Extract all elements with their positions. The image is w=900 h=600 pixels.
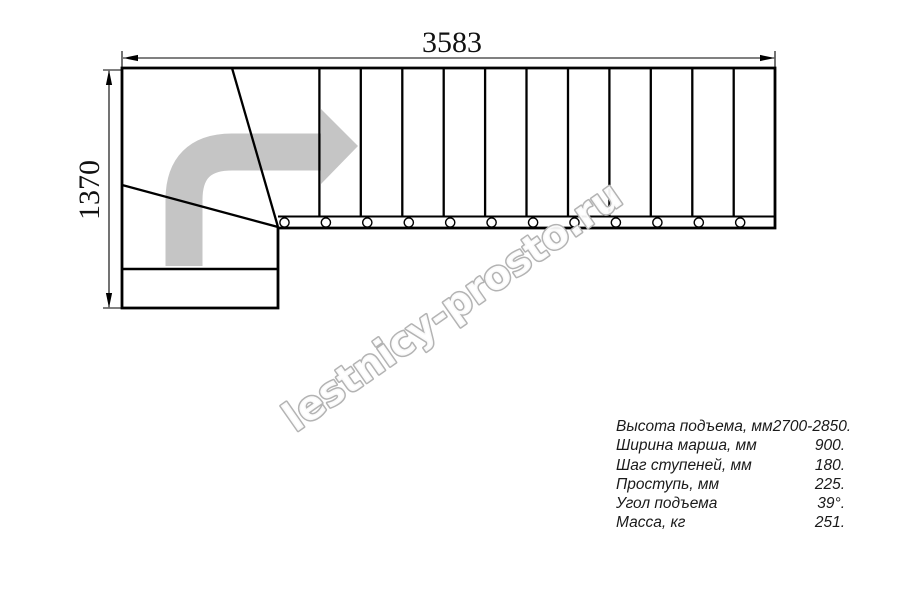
spec-label: Проступь, мм [616,475,719,494]
spec-value: 900. [815,436,845,455]
spec-row-tread-depth: Проступь, мм 225. [616,475,845,494]
baluster-circle [736,218,745,227]
spec-label: Шаг ступеней, мм [616,456,752,475]
width-dimension-label: 3583 [422,26,482,59]
staircase-outline [122,68,775,308]
direction-arrow [184,109,358,266]
spec-label: Ширина марша, мм [616,436,757,455]
spec-value: 39°. [817,494,845,513]
baluster-circles [280,218,745,227]
baluster-circle [487,218,496,227]
dimension-arrow-left [123,55,138,61]
spec-row-step-rise: Шаг ступеней, мм 180. [616,456,845,475]
spec-value: 225. [815,475,845,494]
spec-row-flight-width: Ширина марша, мм 900. [616,436,845,455]
baluster-circle [363,218,372,227]
tread-lines [319,68,733,217]
spec-label: Угол подъема [616,494,717,513]
spec-value: 251. [815,513,845,532]
staircase-plan-page: 3583 1370 [0,0,900,600]
baluster-circle [446,218,455,227]
baluster-circle [694,218,703,227]
spec-table: Высота подъема, мм 2700-2850. Ширина мар… [616,417,845,533]
baluster-circle [321,218,330,227]
spec-value: 2700-2850. [773,417,851,436]
spec-row-climb-angle: Угол подъема 39°. [616,494,845,513]
direction-arrow-shaft [184,152,321,266]
dimension-arrow-bottom [106,293,112,308]
spec-value: 180. [815,456,845,475]
dimension-arrow-top [106,70,112,85]
baluster-circle [404,218,413,227]
direction-arrow-head [321,109,358,184]
spec-label: Масса, кг [616,513,685,532]
spec-row-mass: Масса, кг 251. [616,513,845,532]
baluster-circle [280,218,289,227]
spec-label: Высота подъема, мм [616,417,773,436]
height-dimension-label: 1370 [73,160,106,220]
spec-row-lift-height: Высота подъема, мм 2700-2850. [616,417,845,436]
baluster-circle [653,218,662,227]
watermark: lestnicy-prosto.ru [275,173,631,441]
dimension-arrow-right [760,55,775,61]
